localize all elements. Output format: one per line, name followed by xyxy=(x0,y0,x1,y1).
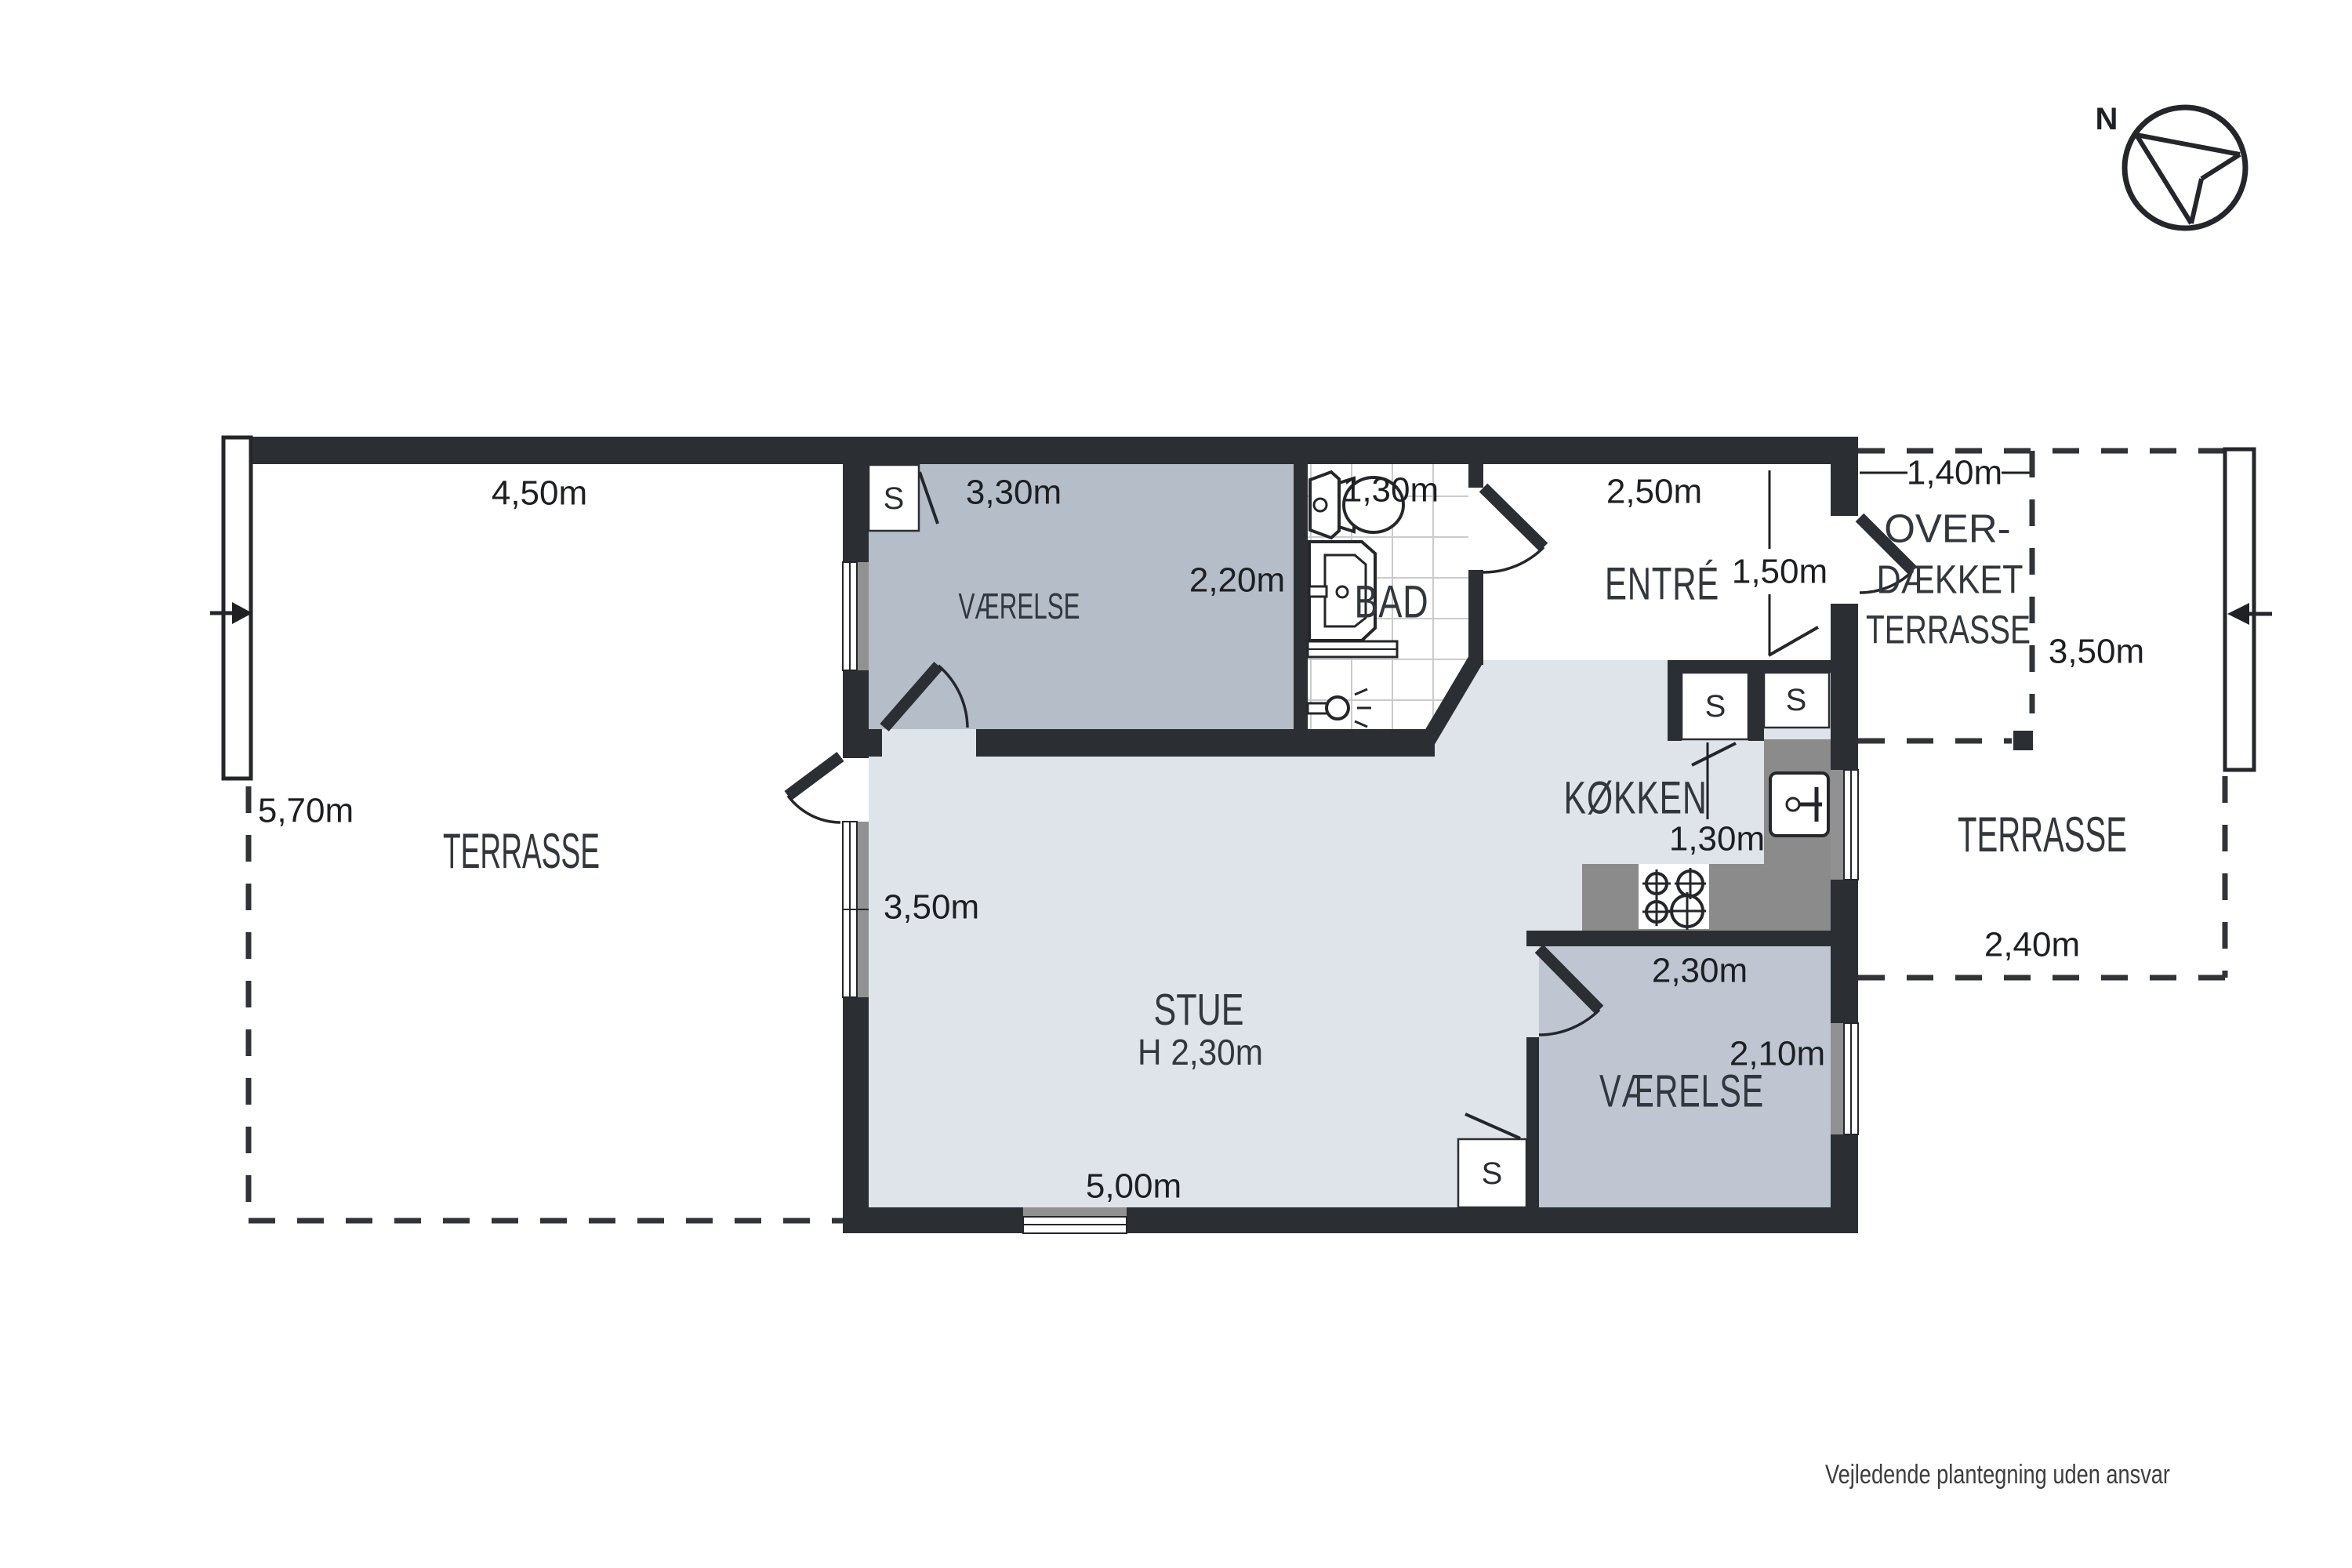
overdaekket-name-3: TERRASSE xyxy=(1866,608,2031,652)
terrace-post xyxy=(2013,731,2033,750)
stue-ceiling-height: H 2,30m xyxy=(1138,1032,1263,1073)
vaerelse-top-width: 3,30m xyxy=(966,474,1062,512)
floorplan-drawing: N 4,50m 5,70m TERRASSE 3,30m VÆRELSE 2,2… xyxy=(0,0,2352,1568)
shelf-icon xyxy=(1308,641,1397,657)
wall-top xyxy=(247,437,1858,464)
overdaekket-name-2: DÆKKET xyxy=(1877,557,2024,602)
floorplan-page: N 4,50m 5,70m TERRASSE 3,30m VÆRELSE 2,2… xyxy=(0,0,2352,1568)
opening-vaerelse-top-door xyxy=(882,729,976,757)
overdaekket-width: 1,40m xyxy=(1907,454,2002,492)
opening-bad-door xyxy=(1468,488,1483,570)
window-vaerelse-bottom-east xyxy=(1831,1023,1858,1134)
section-marker-right xyxy=(2225,449,2272,770)
opening-front-door xyxy=(1831,516,1858,604)
opening-terrace-door xyxy=(843,758,869,822)
stue-name: STUE xyxy=(1154,985,1244,1035)
terrasse-left-width: 4,50m xyxy=(492,474,587,513)
closet-label-entre: S xyxy=(1786,683,1807,717)
wall-vaerelse-bottom-left xyxy=(1526,1037,1539,1207)
window-vaerelse-top-west xyxy=(843,562,869,670)
window-koekken-east xyxy=(1831,770,1858,880)
terrasse-right-name: TERRASSE xyxy=(1958,808,2127,862)
terrasse-left-depth: 5,70m xyxy=(258,792,354,830)
wall-closet-mid xyxy=(1748,660,1764,741)
bad-name: BAD xyxy=(1355,577,1429,628)
wall-closet-left xyxy=(1668,660,1682,741)
closet-label-koekken: S xyxy=(1705,689,1726,724)
window-stue-south xyxy=(1023,1207,1127,1233)
door-terrace xyxy=(788,757,840,822)
wall-vaerelse-bad xyxy=(1294,464,1308,757)
compass-north-label: N xyxy=(2096,102,2118,136)
kitchen-sink-icon xyxy=(1770,773,1828,836)
wall-koekken-vaerelse xyxy=(1526,931,1831,946)
entre-depth: 1,50m xyxy=(1732,553,1828,591)
window-stue-west xyxy=(843,822,869,997)
overdaekket-name-1: OVER- xyxy=(1884,506,2011,551)
closet-label-vaerelse-top: S xyxy=(884,481,905,516)
terrasse-right-width: 2,40m xyxy=(1984,926,2080,964)
vaerelse-top-name: VÆRELSE xyxy=(959,586,1080,626)
section-marker-left xyxy=(210,437,252,779)
vaerelse-top-depth: 2,20m xyxy=(1189,561,1285,600)
koekken-width: 1,30m xyxy=(1669,820,1765,858)
entre-name: ENTRÉ xyxy=(1605,559,1719,610)
vaerelse-bottom-name: VÆRELSE xyxy=(1599,1066,1764,1117)
entre-width: 2,50m xyxy=(1606,473,1702,511)
wall-vaerelse-bottom-b xyxy=(976,729,1435,757)
opening-vaerelse-bottom-door xyxy=(1526,946,1539,1037)
wall-vaerelse-bottom-a xyxy=(869,729,882,757)
overdaekket-depth: 3,50m xyxy=(2049,633,2144,671)
wall-bottom xyxy=(843,1207,1858,1233)
stue-west-depth: 3,50m xyxy=(884,888,979,927)
vaerelse-bottom-width: 2,30m xyxy=(1652,952,1748,990)
stue-south-width: 5,00m xyxy=(1086,1167,1181,1206)
compass-icon: N xyxy=(2096,102,2245,228)
disclaimer-text: Vejledende plantegning uden ansvar xyxy=(1825,1460,2170,1490)
closet-label-stue: S xyxy=(1482,1156,1503,1191)
terrasse-left-name: TERRASSE xyxy=(443,824,600,879)
stove-icon xyxy=(1639,864,1709,930)
bad-width: 1,30m xyxy=(1343,471,1439,510)
koekken-name: KØKKEN xyxy=(1564,773,1708,824)
